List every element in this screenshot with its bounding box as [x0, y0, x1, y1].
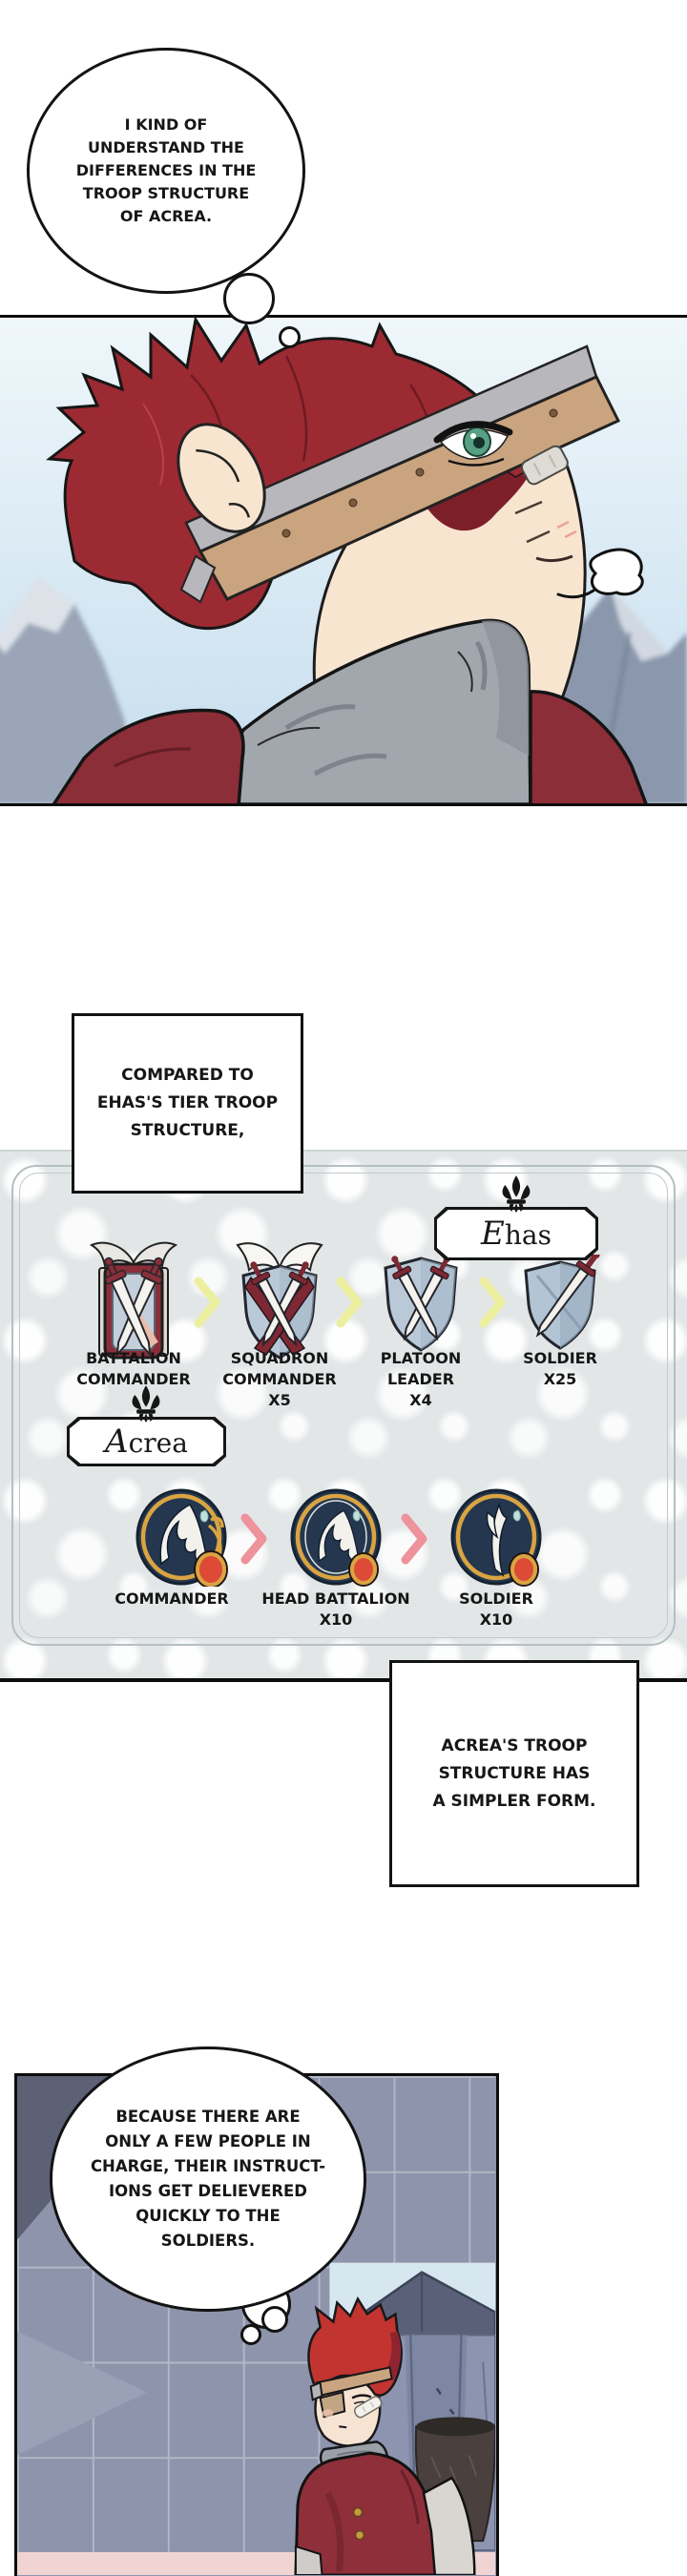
- battalion-commander-shield-icon: [84, 1239, 183, 1365]
- label-soldier-x10: SOLDIERX10: [423, 1589, 570, 1631]
- rank-arrow-icon: [336, 1276, 364, 1333]
- bubble-line: SOLDIERS.: [52, 2229, 364, 2254]
- caption-line: ACREA'S TROOP: [392, 1733, 636, 1760]
- mouth: [339, 2426, 346, 2427]
- thought-bubble-few-people: BECAUSE THERE ARE ONLY A FEW PEOPLE IN C…: [50, 2046, 366, 2312]
- caption-line: STRUCTURE HAS: [392, 1760, 636, 1788]
- label-commander: COMMANDER: [98, 1589, 245, 1610]
- rank-arrow-icon: [240, 1512, 269, 1569]
- vest-button: [354, 2508, 363, 2517]
- character: [50, 320, 647, 803]
- bubble-line: DIFFERENCES IN THE: [30, 159, 302, 182]
- label-head-battalion-x10: HEAD BATTALIONX10: [255, 1589, 417, 1631]
- label-platoon-leader: PLATOONLEADERX4: [347, 1348, 494, 1411]
- rank-arrow-icon: [401, 1512, 429, 1569]
- bubble-line: TROOP STRUCTURE: [30, 182, 302, 205]
- sky-character-art: [0, 318, 687, 803]
- acrea-head-battalion-emblem-icon: [289, 1487, 383, 1590]
- panel-sky-character: [0, 315, 687, 806]
- bubble-line: OF ACREA.: [30, 205, 302, 228]
- thought-bubble-troop-structure: I KIND OF UNDERSTAND THE DIFFERENCES IN …: [27, 48, 305, 294]
- ehas-banner-label: Ehas: [481, 1217, 552, 1250]
- caption-line: COMPARED TO: [74, 1062, 301, 1090]
- acrea-banner: Acrea: [67, 1417, 226, 1466]
- bubble-line: UNDERSTAND THE: [30, 136, 302, 159]
- bubble-line: ONLY A FEW PEOPLE IN: [52, 2129, 364, 2154]
- label-soldier-x25: SOLDIERX25: [487, 1348, 634, 1390]
- troop-structure-diagram-panel: Ehas: [0, 1150, 687, 1682]
- bubble-line: I KIND OF: [30, 114, 302, 136]
- fleur-de-lis-icon: [129, 1384, 163, 1423]
- thought-bubble-dot: [261, 2306, 288, 2333]
- platoon-leader-shield-icon: [375, 1249, 467, 1361]
- comic-page: { "bubble1": { "lines": ["I KIND OF", "U…: [0, 0, 687, 2576]
- thought-bubble-dot: [279, 326, 301, 348]
- caption-acrea-simpler-form: ACREA'S TROOP STRUCTURE HAS A SIMPLER FO…: [389, 1660, 639, 1887]
- rank-arrow-icon: [194, 1276, 222, 1333]
- soldier-shield-icon: [518, 1255, 602, 1358]
- bubble-line: QUICKLY TO THE: [52, 2204, 364, 2229]
- caption-compared-to-ehas: COMPARED TO EHAS'S TIER TROOP STRUCTURE,: [72, 1013, 303, 1194]
- acrea-commander-emblem-icon: [135, 1487, 228, 1590]
- label-squadron-commander: SQUADRONCOMMANDERX5: [206, 1348, 353, 1411]
- ehas-banner: Ehas: [434, 1207, 598, 1260]
- acrea-soldier-emblem-icon: [449, 1487, 543, 1590]
- thought-bubble-bump: [223, 273, 275, 324]
- bubble-line: IONS GET DELIEVERED: [52, 2179, 364, 2204]
- caption-line: STRUCTURE,: [74, 1117, 301, 1145]
- caption-line: A SIMPLER FORM.: [392, 1788, 636, 1816]
- acrea-banner-label: Acrea: [105, 1425, 188, 1458]
- caption-line: EHAS'S TIER TROOP: [74, 1090, 301, 1117]
- thought-bubble-dot: [240, 2324, 261, 2345]
- bubble-line: BECAUSE THERE ARE: [52, 2105, 364, 2129]
- squadron-commander-shield-icon: [232, 1241, 327, 1363]
- bubble-line: CHARGE, THEIR INSTRUCT-: [52, 2154, 364, 2179]
- fleur-de-lis-icon: [499, 1174, 533, 1213]
- rank-arrow-icon: [479, 1276, 508, 1333]
- vest-button: [356, 2531, 364, 2540]
